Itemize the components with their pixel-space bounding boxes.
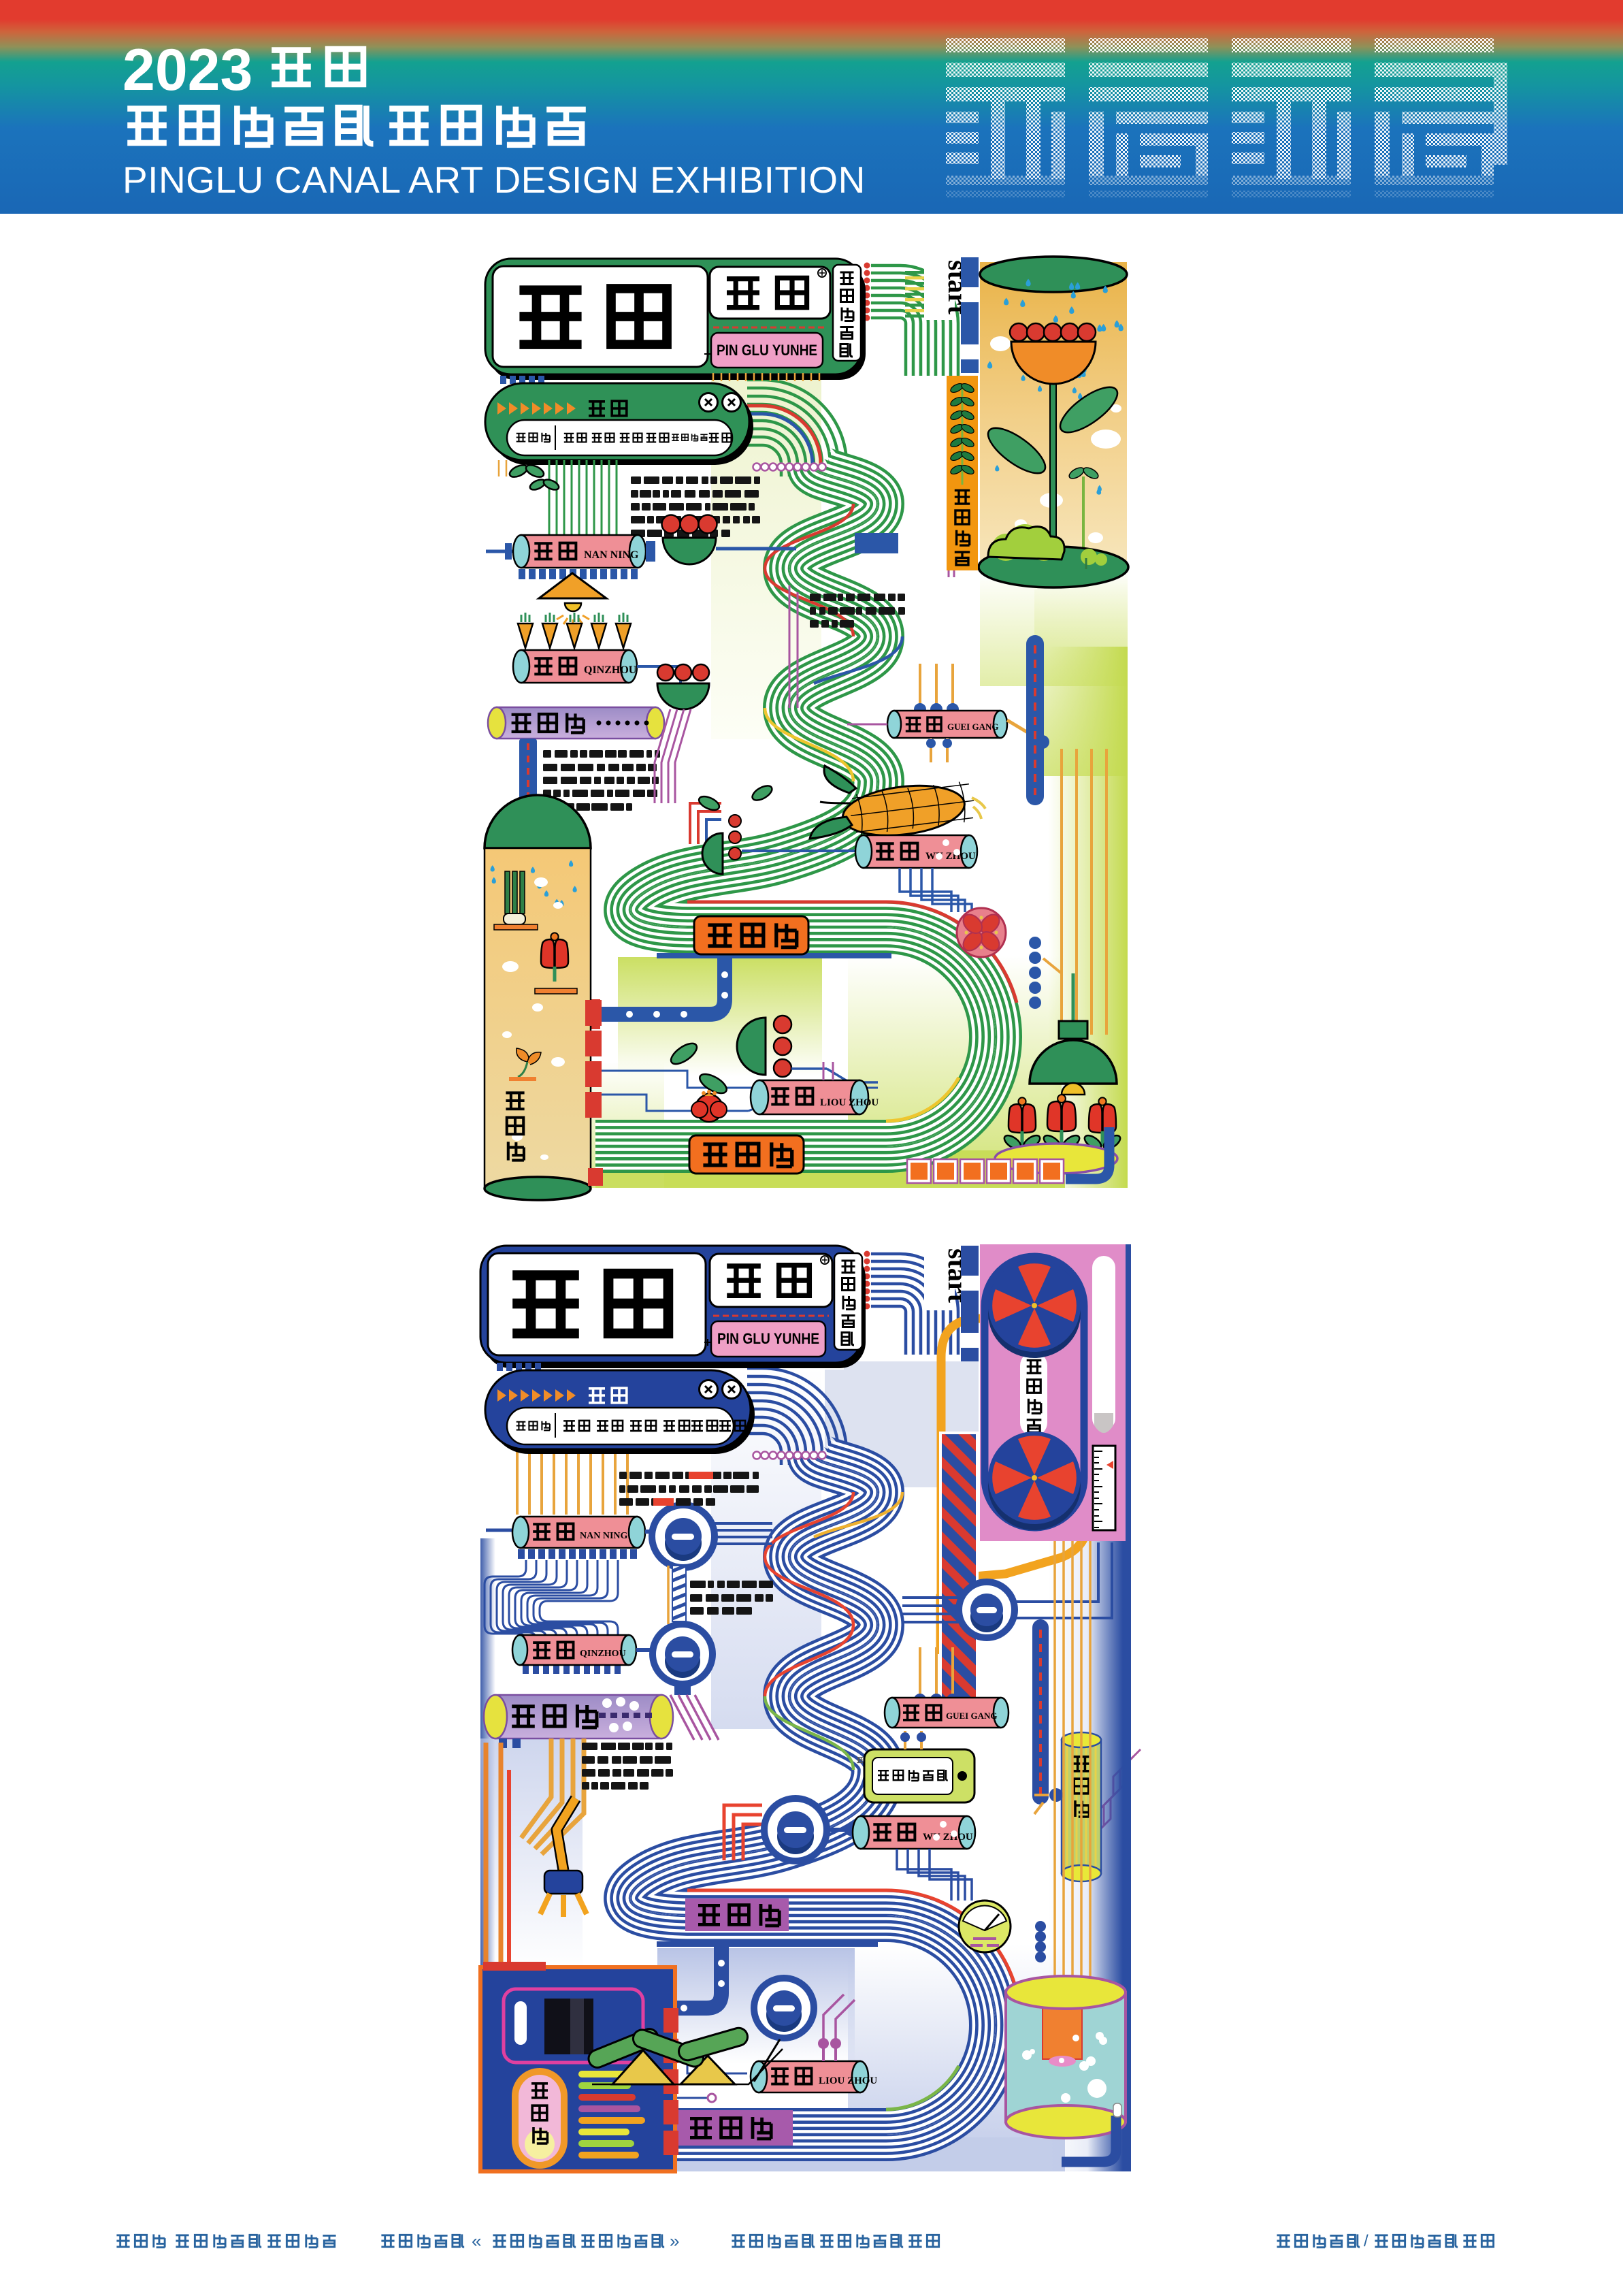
- svg-text:NAN NING: NAN NING: [584, 549, 639, 561]
- svg-text:QINZHOU: QINZHOU: [580, 1649, 626, 1659]
- svg-text:GUEI GANG: GUEI GANG: [947, 722, 998, 732]
- svg-text:GUEI GANG: GUEI GANG: [946, 1711, 997, 1721]
- svg-text:QINZHOU: QINZHOU: [584, 664, 637, 676]
- svg-text:PIN GLU YUNHE: PIN GLU YUNHE: [717, 342, 817, 359]
- svg-text:WU ZHOU: WU ZHOU: [925, 851, 976, 862]
- svg-text:LIOU ZHOU: LIOU ZHOU: [820, 1097, 879, 1108]
- svg-text:WU ZHOU: WU ZHOU: [923, 1832, 973, 1843]
- svg-text:LIOU ZHOU: LIOU ZHOU: [819, 2075, 877, 2086]
- svg-text:NAN NING: NAN NING: [580, 1531, 628, 1541]
- svg-text:»: »: [670, 2231, 679, 2251]
- svg-text:/: /: [1364, 2232, 1368, 2250]
- svg-text:«: «: [472, 2231, 481, 2251]
- svg-text:PINGLU CANAL ART DESIGN EXHIBI: PINGLU CANAL ART DESIGN EXHIBITION: [122, 159, 866, 201]
- svg-text:PIN GLU YUNHE: PIN GLU YUNHE: [717, 1330, 819, 1347]
- svg-text:2023: 2023: [122, 37, 252, 103]
